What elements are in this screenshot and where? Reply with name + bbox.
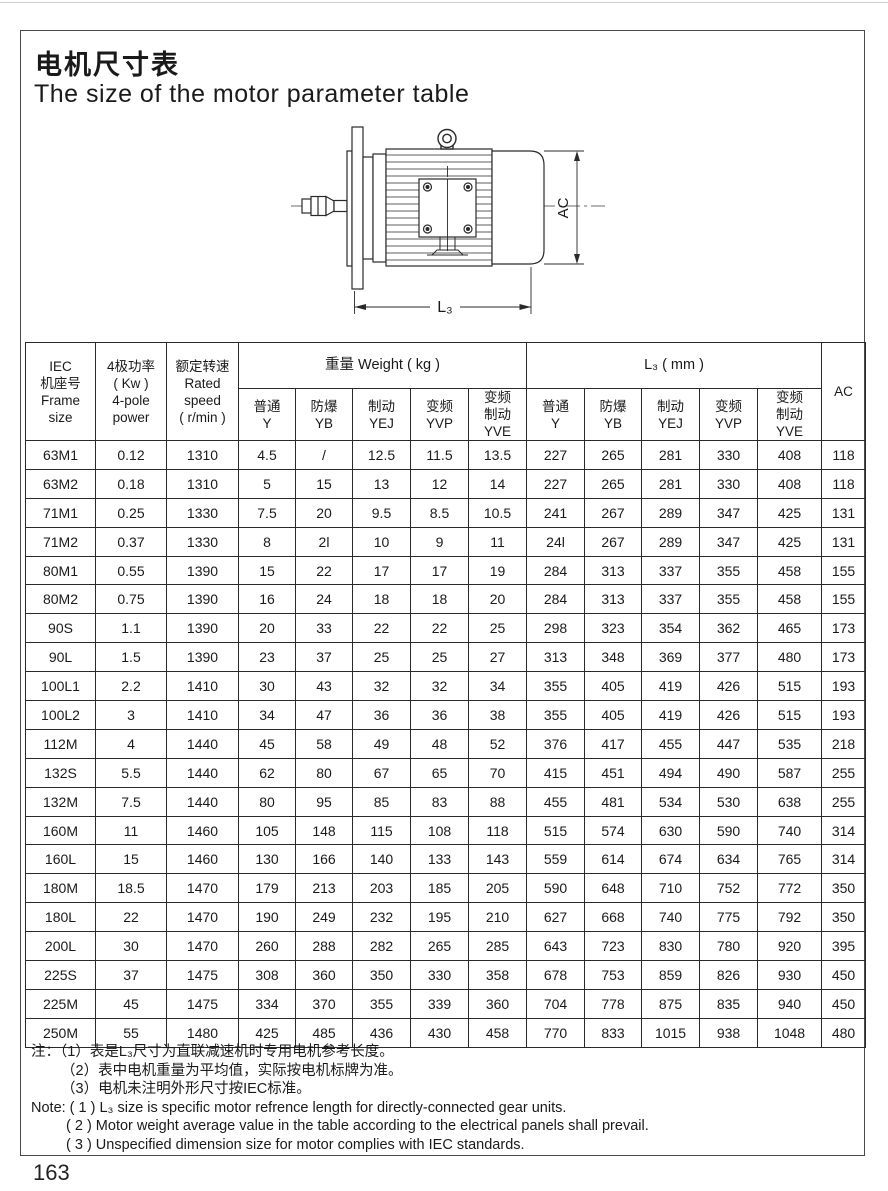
table-cell: 835 bbox=[700, 989, 758, 1018]
table-cell: 339 bbox=[411, 989, 469, 1018]
motor-dimension-drawing: AC L₃ bbox=[277, 111, 622, 323]
table-cell: 1470 bbox=[167, 932, 239, 961]
column-header-weight-yej: 制动 YEJ bbox=[353, 389, 411, 441]
table-cell: 830 bbox=[642, 932, 700, 961]
table-cell: 288 bbox=[296, 932, 353, 961]
table-cell: 408 bbox=[758, 441, 822, 470]
table-row: 63M10.1213104.5/12.511.513.5227265281330… bbox=[26, 441, 866, 470]
table-cell: 674 bbox=[642, 845, 700, 874]
table-cell: 34 bbox=[239, 701, 296, 730]
table-cell: 20 bbox=[239, 614, 296, 643]
table-cell: 1015 bbox=[642, 1018, 700, 1047]
table-cell: 1.5 bbox=[96, 643, 167, 672]
table-cell: 4 bbox=[96, 729, 167, 758]
table-cell: 131 bbox=[822, 527, 866, 556]
table-cell: 48 bbox=[411, 729, 469, 758]
table-cell: 778 bbox=[585, 989, 642, 1018]
table-cell: 337 bbox=[642, 585, 700, 614]
table-cell: 1390 bbox=[167, 643, 239, 672]
table-cell: 45 bbox=[96, 989, 167, 1018]
table-cell: 490 bbox=[700, 758, 758, 787]
table-cell: 323 bbox=[585, 614, 642, 643]
table-cell: 267 bbox=[585, 527, 642, 556]
column-header-l3-yb: 防爆 YB bbox=[585, 389, 642, 441]
table-cell: 1390 bbox=[167, 614, 239, 643]
table-cell: 1310 bbox=[167, 469, 239, 498]
table-cell: 350 bbox=[822, 874, 866, 903]
table-cell: 630 bbox=[642, 816, 700, 845]
table-body: 63M10.1213104.5/12.511.513.5227265281330… bbox=[26, 441, 866, 1048]
table-cell: 267 bbox=[585, 498, 642, 527]
table-cell: 450 bbox=[822, 961, 866, 990]
column-header-speed: 额定转速 Rated speed ( r/min ) bbox=[167, 343, 239, 441]
table-cell: 405 bbox=[585, 672, 642, 701]
table-cell: 298 bbox=[527, 614, 585, 643]
table-cell: 218 bbox=[822, 729, 866, 758]
table-cell: 940 bbox=[758, 989, 822, 1018]
column-header-weight-yve: 变频 制动 YVE bbox=[469, 389, 527, 441]
table-cell: 355 bbox=[353, 989, 411, 1018]
table-cell: 405 bbox=[585, 701, 642, 730]
page-title-en: The size of the motor parameter table bbox=[34, 80, 469, 109]
table-cell: 417 bbox=[585, 729, 642, 758]
table-cell: 80 bbox=[296, 758, 353, 787]
table-cell: 451 bbox=[585, 758, 642, 787]
note-en-1: Note: ( 1 ) L₃ size is specific motor re… bbox=[31, 1099, 649, 1118]
table-cell: 627 bbox=[527, 903, 585, 932]
table-cell: 455 bbox=[642, 729, 700, 758]
table-cell: 1475 bbox=[167, 961, 239, 990]
table-cell: 395 bbox=[822, 932, 866, 961]
table-cell: 155 bbox=[822, 556, 866, 585]
note-zh-2: （2）表中电机重量为平均值，实际按电机标牌为准。 bbox=[31, 1062, 649, 1081]
table-cell: 458 bbox=[758, 556, 822, 585]
table-cell: 1048 bbox=[758, 1018, 822, 1047]
table-cell: 7.5 bbox=[239, 498, 296, 527]
table-cell: 18 bbox=[353, 585, 411, 614]
table-cell: 30 bbox=[96, 932, 167, 961]
table-cell: 8 bbox=[239, 527, 296, 556]
table-cell: 447 bbox=[700, 729, 758, 758]
table-cell: 1310 bbox=[167, 441, 239, 470]
table-cell: 23 bbox=[239, 643, 296, 672]
table-cell: 0.25 bbox=[96, 498, 167, 527]
table-cell: 118 bbox=[469, 816, 527, 845]
table-cell: 67 bbox=[353, 758, 411, 787]
table-cell: 415 bbox=[527, 758, 585, 787]
table-cell: 350 bbox=[353, 961, 411, 990]
table-cell: 166 bbox=[296, 845, 353, 874]
table-cell: 10.5 bbox=[469, 498, 527, 527]
table-cell: 281 bbox=[642, 469, 700, 498]
table-cell: 376 bbox=[527, 729, 585, 758]
table-cell: 90L bbox=[26, 643, 96, 672]
table-cell: 180L bbox=[26, 903, 96, 932]
table-row: 225M451475334370355339360704778875835940… bbox=[26, 989, 866, 1018]
table-cell: 0.18 bbox=[96, 469, 167, 498]
table-cell: 30 bbox=[239, 672, 296, 701]
table-cell: 37 bbox=[296, 643, 353, 672]
table-cell: 859 bbox=[642, 961, 700, 990]
table-cell: 358 bbox=[469, 961, 527, 990]
notes-block: 注：（1）表是L₃尺寸为直联减速机时专用电机参考长度。 （2）表中电机重量为平均… bbox=[31, 1043, 649, 1155]
table-cell: 132S bbox=[26, 758, 96, 787]
table-cell: 1330 bbox=[167, 527, 239, 556]
table-cell: 408 bbox=[758, 469, 822, 498]
table-cell: 1410 bbox=[167, 672, 239, 701]
table-cell: 63M1 bbox=[26, 441, 96, 470]
table-cell: 678 bbox=[527, 961, 585, 990]
table-cell: 0.55 bbox=[96, 556, 167, 585]
scan-edge-line bbox=[0, 2, 888, 3]
table-cell: 515 bbox=[758, 672, 822, 701]
table-row: 112M414404558494852376417455447535218 bbox=[26, 729, 866, 758]
table-cell: 772 bbox=[758, 874, 822, 903]
table-cell: 14 bbox=[469, 469, 527, 498]
table-cell: 0.37 bbox=[96, 527, 167, 556]
table-row: 80M20.7513901624181820284313337355458155 bbox=[26, 585, 866, 614]
table-cell: 348 bbox=[585, 643, 642, 672]
table-cell: 634 bbox=[700, 845, 758, 874]
table-cell: 131 bbox=[822, 498, 866, 527]
column-header-l3-y: 普通 Y bbox=[527, 389, 585, 441]
table-cell: 930 bbox=[758, 961, 822, 990]
table-cell: 334 bbox=[239, 989, 296, 1018]
table-cell: 249 bbox=[296, 903, 353, 932]
table-cell: 282 bbox=[353, 932, 411, 961]
table-cell: 1330 bbox=[167, 498, 239, 527]
table-cell: 337 bbox=[642, 556, 700, 585]
table-row: 100L2314103447363638355405419426515193 bbox=[26, 701, 866, 730]
table-row: 63M20.181310515131214227265281330408118 bbox=[26, 469, 866, 498]
table-row: 160L151460130166140133143559614674634765… bbox=[26, 845, 866, 874]
table-cell: 49 bbox=[353, 729, 411, 758]
table-cell: 753 bbox=[585, 961, 642, 990]
table-cell: 205 bbox=[469, 874, 527, 903]
table-cell: 36 bbox=[353, 701, 411, 730]
table-cell: / bbox=[296, 441, 353, 470]
table-cell: 160L bbox=[26, 845, 96, 874]
table-cell: 185 bbox=[411, 874, 469, 903]
table-cell: 530 bbox=[700, 787, 758, 816]
eye-bolt bbox=[438, 130, 456, 150]
note-en-2: ( 2 ) Motor weight average value in the … bbox=[31, 1117, 649, 1136]
column-header-weight-yvp: 变频 YVP bbox=[411, 389, 469, 441]
table-cell: 8.5 bbox=[411, 498, 469, 527]
table-cell: 71M1 bbox=[26, 498, 96, 527]
table-cell: 590 bbox=[700, 816, 758, 845]
table-cell: 225S bbox=[26, 961, 96, 990]
table-cell: 22 bbox=[411, 614, 469, 643]
table-cell: 265 bbox=[411, 932, 469, 961]
table-cell: 314 bbox=[822, 816, 866, 845]
table-cell: 213 bbox=[296, 874, 353, 903]
table-cell: 225M bbox=[26, 989, 96, 1018]
table-cell: 780 bbox=[700, 932, 758, 961]
table-cell: 752 bbox=[700, 874, 758, 903]
table-cell: 32 bbox=[353, 672, 411, 701]
table-cell: 15 bbox=[96, 845, 167, 874]
table-cell: 12 bbox=[411, 469, 469, 498]
table-cell: 289 bbox=[642, 527, 700, 556]
column-header-l3-yvp: 变频 YVP bbox=[700, 389, 758, 441]
table-cell: 148 bbox=[296, 816, 353, 845]
table-cell: 450 bbox=[822, 989, 866, 1018]
table-row: 200L301470260288282265285643723830780920… bbox=[26, 932, 866, 961]
table-cell: 355 bbox=[527, 672, 585, 701]
table-cell: 155 bbox=[822, 585, 866, 614]
column-header-l3-yve: 变频 制动 YVE bbox=[758, 389, 822, 441]
column-header-weight-y: 普通 Y bbox=[239, 389, 296, 441]
column-header-power: 4极功率 ( Kw ) 4-pole power bbox=[96, 343, 167, 441]
table-cell: 1460 bbox=[167, 816, 239, 845]
table-cell: 10 bbox=[353, 527, 411, 556]
table-cell: 100L2 bbox=[26, 701, 96, 730]
table-cell: 1470 bbox=[167, 874, 239, 903]
column-header-frame: IEC 机座号 Frame size bbox=[26, 343, 96, 441]
table-row: 71M20.37133082l1091124l267289347425131 bbox=[26, 527, 866, 556]
table-cell: 559 bbox=[527, 845, 585, 874]
table-cell: 63M2 bbox=[26, 469, 96, 498]
table-cell: 130 bbox=[239, 845, 296, 874]
table-cell: 45 bbox=[239, 729, 296, 758]
table-cell: 535 bbox=[758, 729, 822, 758]
table-row: 132M7.514408095858388455481534530638255 bbox=[26, 787, 866, 816]
table-cell: 9 bbox=[411, 527, 469, 556]
table-cell: 370 bbox=[296, 989, 353, 1018]
table-cell: 19 bbox=[469, 556, 527, 585]
table-cell: 875 bbox=[642, 989, 700, 1018]
table-cell: 52 bbox=[469, 729, 527, 758]
table-cell: 227 bbox=[527, 469, 585, 498]
table-cell: 765 bbox=[758, 845, 822, 874]
table-cell: 15 bbox=[296, 469, 353, 498]
table-cell: 0.75 bbox=[96, 585, 167, 614]
table-cell: 58 bbox=[296, 729, 353, 758]
table-cell: 668 bbox=[585, 903, 642, 932]
table-cell: 314 bbox=[822, 845, 866, 874]
l3-dim-label: L₃ bbox=[437, 299, 452, 316]
table-cell: 88 bbox=[469, 787, 527, 816]
table-cell: 33 bbox=[296, 614, 353, 643]
table-cell: 83 bbox=[411, 787, 469, 816]
table-cell: 419 bbox=[642, 701, 700, 730]
table-cell: 18.5 bbox=[96, 874, 167, 903]
table-cell: 17 bbox=[411, 556, 469, 585]
table-row: 180M18.514701792132031852055906487107527… bbox=[26, 874, 866, 903]
table-cell: 62 bbox=[239, 758, 296, 787]
table-cell: 112M bbox=[26, 729, 96, 758]
column-group-weight: 重量 Weight ( kg ) bbox=[239, 343, 527, 389]
table-cell: 190 bbox=[239, 903, 296, 932]
table-cell: 377 bbox=[700, 643, 758, 672]
table-cell: 132M bbox=[26, 787, 96, 816]
table-cell: 494 bbox=[642, 758, 700, 787]
table-cell: 704 bbox=[527, 989, 585, 1018]
table-cell: 133 bbox=[411, 845, 469, 874]
table-cell: 140 bbox=[353, 845, 411, 874]
table-cell: 193 bbox=[822, 701, 866, 730]
table-row: 225S371475308360350330358678753859826930… bbox=[26, 961, 866, 990]
table-cell: 38 bbox=[469, 701, 527, 730]
table-cell: 7.5 bbox=[96, 787, 167, 816]
table-cell: 710 bbox=[642, 874, 700, 903]
table-cell: 37 bbox=[96, 961, 167, 990]
table-cell: 330 bbox=[411, 961, 469, 990]
table-cell: 587 bbox=[758, 758, 822, 787]
table-cell: 90S bbox=[26, 614, 96, 643]
column-header-weight-yb: 防爆 YB bbox=[296, 389, 353, 441]
flange bbox=[347, 127, 386, 289]
table-cell: 210 bbox=[469, 903, 527, 932]
table-cell: 4.5 bbox=[239, 441, 296, 470]
table-cell: 115 bbox=[353, 816, 411, 845]
table-cell: 347 bbox=[700, 527, 758, 556]
fan-cover bbox=[492, 151, 544, 264]
table-cell: 285 bbox=[469, 932, 527, 961]
table-cell: 25 bbox=[469, 614, 527, 643]
catalog-page: { "page": { "title_zh": "电机尺寸表", "title_… bbox=[0, 0, 888, 1191]
table-cell: 574 bbox=[585, 816, 642, 845]
table-cell: 16 bbox=[239, 585, 296, 614]
table-cell: 1475 bbox=[167, 989, 239, 1018]
shaft bbox=[302, 197, 347, 216]
table-cell: 265 bbox=[585, 469, 642, 498]
table-cell: 938 bbox=[700, 1018, 758, 1047]
table-cell: 80M1 bbox=[26, 556, 96, 585]
table-cell: 515 bbox=[527, 816, 585, 845]
table-cell: 22 bbox=[296, 556, 353, 585]
table-cell: 1440 bbox=[167, 787, 239, 816]
table-cell: 1390 bbox=[167, 585, 239, 614]
table-cell: 25 bbox=[411, 643, 469, 672]
table-cell: 426 bbox=[700, 701, 758, 730]
table-cell: 22 bbox=[96, 903, 167, 932]
table-cell: 1470 bbox=[167, 903, 239, 932]
table-cell: 355 bbox=[527, 701, 585, 730]
table-cell: 9.5 bbox=[353, 498, 411, 527]
table-cell: 308 bbox=[239, 961, 296, 990]
table-header: IEC 机座号 Frame size 4极功率 ( Kw ) 4-pole po… bbox=[26, 343, 866, 441]
table-cell: 313 bbox=[585, 556, 642, 585]
table-cell: 425 bbox=[758, 498, 822, 527]
table-cell: 740 bbox=[642, 903, 700, 932]
table-cell: 12.5 bbox=[353, 441, 411, 470]
column-header-ac: AC bbox=[822, 343, 866, 441]
table-row: 180L221470190249232195210627668740775792… bbox=[26, 903, 866, 932]
table-cell: 419 bbox=[642, 672, 700, 701]
column-group-l3: L₃ ( mm ) bbox=[527, 343, 822, 389]
table-cell: 289 bbox=[642, 498, 700, 527]
table-cell: 80 bbox=[239, 787, 296, 816]
note-zh-3: （3）电机未注明外形尺寸按IEC标准。 bbox=[31, 1080, 649, 1099]
table-cell: 260 bbox=[239, 932, 296, 961]
table-cell: 100L1 bbox=[26, 672, 96, 701]
table-cell: 740 bbox=[758, 816, 822, 845]
table-cell: 18 bbox=[411, 585, 469, 614]
table-cell: 70 bbox=[469, 758, 527, 787]
table-cell: 13.5 bbox=[469, 441, 527, 470]
table-row: 90S1.113902033222225298323354362465173 bbox=[26, 614, 866, 643]
table-cell: 47 bbox=[296, 701, 353, 730]
table-cell: 360 bbox=[469, 989, 527, 1018]
table-cell: 0.12 bbox=[96, 441, 167, 470]
table-cell: 480 bbox=[758, 643, 822, 672]
table-cell: 80M2 bbox=[26, 585, 96, 614]
content-frame: 电机尺寸表 The size of the motor parameter ta… bbox=[20, 30, 865, 1156]
table-cell: 425 bbox=[758, 527, 822, 556]
table-cell: 193 bbox=[822, 672, 866, 701]
table-cell: 143 bbox=[469, 845, 527, 874]
table-cell: 614 bbox=[585, 845, 642, 874]
table-cell: 284 bbox=[527, 585, 585, 614]
table-cell: 160M bbox=[26, 816, 96, 845]
table-cell: 36 bbox=[411, 701, 469, 730]
table-cell: 3 bbox=[96, 701, 167, 730]
table-cell: 11 bbox=[469, 527, 527, 556]
table-cell: 1440 bbox=[167, 729, 239, 758]
table-cell: 173 bbox=[822, 614, 866, 643]
table-cell: 118 bbox=[822, 441, 866, 470]
table-cell: 313 bbox=[585, 585, 642, 614]
table-cell: 792 bbox=[758, 903, 822, 932]
ac-dimension: AC bbox=[544, 151, 584, 264]
table-cell: 25 bbox=[353, 643, 411, 672]
table-cell: 27 bbox=[469, 643, 527, 672]
table-row: 90L1.513902337252527313348369377480173 bbox=[26, 643, 866, 672]
table-cell: 255 bbox=[822, 787, 866, 816]
table-cell: 330 bbox=[700, 469, 758, 498]
table-cell: 195 bbox=[411, 903, 469, 932]
table-row: 71M10.2513307.5209.58.510.52412672893474… bbox=[26, 498, 866, 527]
ac-dim-label: AC bbox=[555, 197, 572, 218]
table-row: 132S5.514406280676570415451494490587255 bbox=[26, 758, 866, 787]
table-cell: 11.5 bbox=[411, 441, 469, 470]
table-cell: 17 bbox=[353, 556, 411, 585]
table-cell: 354 bbox=[642, 614, 700, 643]
table-cell: 330 bbox=[700, 441, 758, 470]
table-row: 100L12.214103043323234355405419426515193 bbox=[26, 672, 866, 701]
table-cell: 920 bbox=[758, 932, 822, 961]
table-cell: 1390 bbox=[167, 556, 239, 585]
table-cell: 43 bbox=[296, 672, 353, 701]
table-cell: 15 bbox=[239, 556, 296, 585]
table-cell: 458 bbox=[758, 585, 822, 614]
table-cell: 455 bbox=[527, 787, 585, 816]
table-row: 160M111460105148115108118515574630590740… bbox=[26, 816, 866, 845]
table-cell: 13 bbox=[353, 469, 411, 498]
table-cell: 481 bbox=[585, 787, 642, 816]
table-cell: 105 bbox=[239, 816, 296, 845]
table-cell: 347 bbox=[700, 498, 758, 527]
table-cell: 5.5 bbox=[96, 758, 167, 787]
table-cell: 179 bbox=[239, 874, 296, 903]
table-cell: 643 bbox=[527, 932, 585, 961]
table-cell: 362 bbox=[700, 614, 758, 643]
table-cell: 2.2 bbox=[96, 672, 167, 701]
table-cell: 11 bbox=[96, 816, 167, 845]
table-cell: 2l bbox=[296, 527, 353, 556]
table-cell: 355 bbox=[700, 585, 758, 614]
table-cell: 281 bbox=[642, 441, 700, 470]
table-cell: 350 bbox=[822, 903, 866, 932]
table-cell: 32 bbox=[411, 672, 469, 701]
table-cell: 369 bbox=[642, 643, 700, 672]
table-cell: 313 bbox=[527, 643, 585, 672]
table-cell: 515 bbox=[758, 701, 822, 730]
table-cell: 284 bbox=[527, 556, 585, 585]
table-cell: 590 bbox=[527, 874, 585, 903]
